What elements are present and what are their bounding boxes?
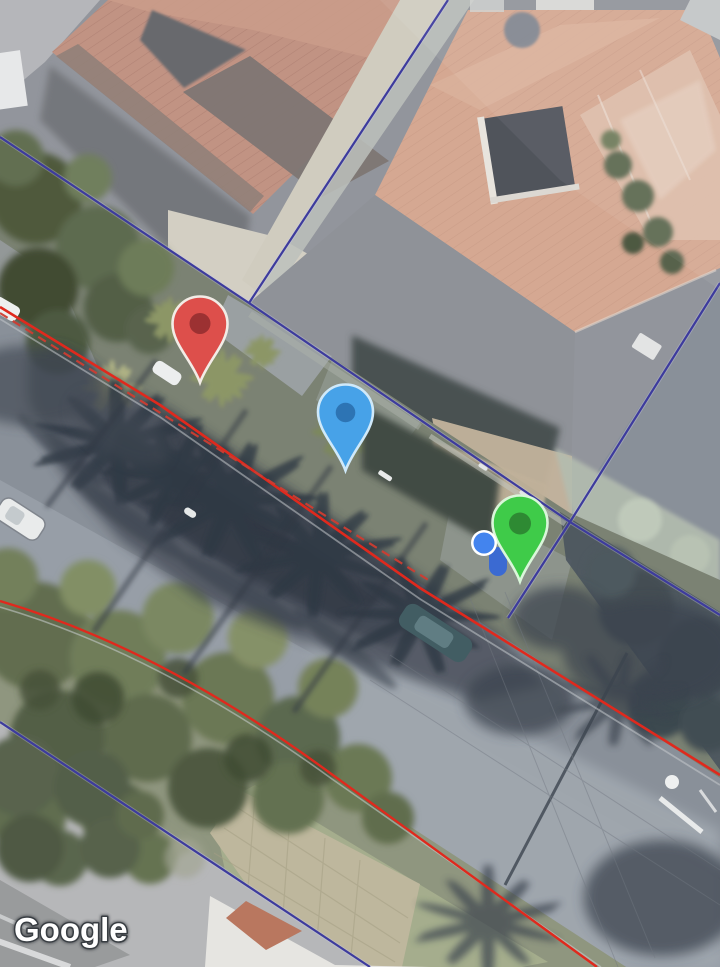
- svg-text:Google: Google: [14, 911, 128, 948]
